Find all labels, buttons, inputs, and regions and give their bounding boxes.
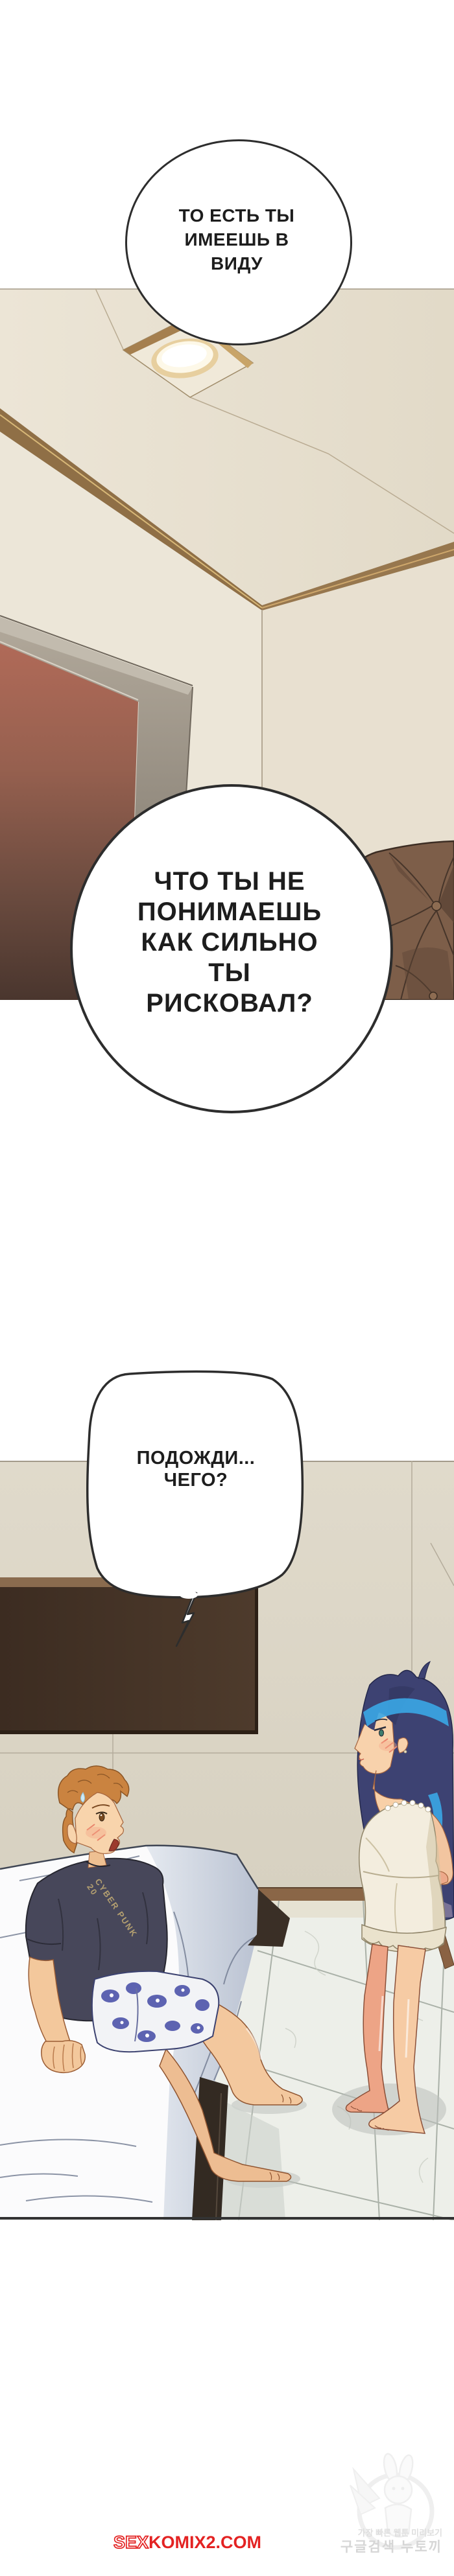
speech-bubble-2-text: ЧТО ТЫ НЕ ПОНИМАЕШЬ КАК СИЛЬНО ТЫ РИСКОВ… [70, 866, 389, 1019]
speech-bubble-3 [0, 1361, 454, 1659]
bubble1-line2: ИМЕЕШЬ В [125, 227, 348, 251]
bubble3-tail [176, 1593, 197, 1646]
watermark-prefix: SEX [113, 2533, 149, 2552]
speech-bubble-3-text: ПОДОЖДИ... ЧЕГО? [87, 1447, 305, 1491]
watermark-suffix: KOMIX2.COM [149, 2533, 261, 2552]
bubble1-line1: ТО ЕСТЬ ТЫ [125, 203, 348, 227]
bubble2-line3: КАК СИЛЬНО [70, 927, 389, 958]
watermark-sexkomix: SEXKOMIX2.COM [113, 2533, 261, 2553]
bubble2-line4: ТЫ [70, 958, 389, 988]
bubble2-line1: ЧТО ТЫ НЕ [70, 866, 389, 897]
bubble3-line1: ПОДОЖДИ... [87, 1447, 305, 1469]
site-logo-name: 구글검색 누토끼 [340, 2536, 442, 2556]
bubble1-line3: ВИДУ [125, 251, 348, 275]
bubble2-line2: ПОНИМАЕШЬ [70, 897, 389, 927]
webtoon-page: ТО ЕСТЬ ТЫ ИМЕЕШЬ В ВИДУ ЧТО ТЫ НЕ ПОНИМ… [0, 0, 454, 2576]
boy-shorts [92, 1971, 219, 2052]
bubble3-line2: ЧЕГО? [87, 1469, 305, 1491]
bubble2-line5: РИСКОВАЛ? [70, 988, 389, 1019]
speech-bubble-1-text: ТО ЕСТЬ ТЫ ИМЕЕШЬ В ВИДУ [125, 203, 348, 275]
